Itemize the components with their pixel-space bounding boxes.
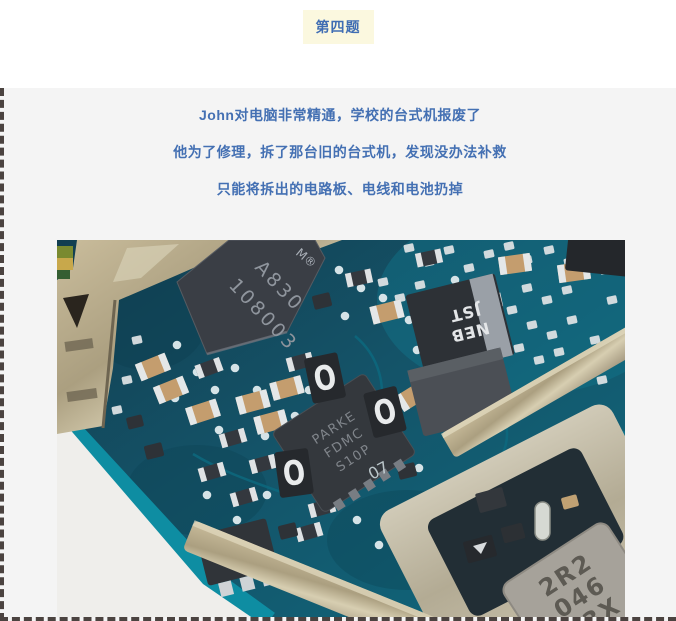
question-line-1: John对电脑非常精通，学校的台式机报废了 (4, 105, 676, 125)
circuit-board-photo: A830 108003 M® NEB JST (57, 240, 625, 621)
question-number-badge: 第四题 (303, 10, 374, 44)
crystal-capsule (535, 502, 550, 540)
question-section: John对电脑非常精通，学校的台式机报废了 他为了修理，拆了那台旧的台式机，发现… (0, 88, 676, 621)
question-line-2: 他为了修理，拆了那台旧的台式机，发现没办法补救 (4, 142, 676, 162)
question-line-3: 只能将拆出的电路板、电线和电池扔掉 (4, 179, 676, 199)
pcb-illustration: A830 108003 M® NEB JST (57, 240, 625, 621)
o-marker-2: O (274, 448, 314, 498)
badge-row: 第四题 (0, 10, 676, 44)
